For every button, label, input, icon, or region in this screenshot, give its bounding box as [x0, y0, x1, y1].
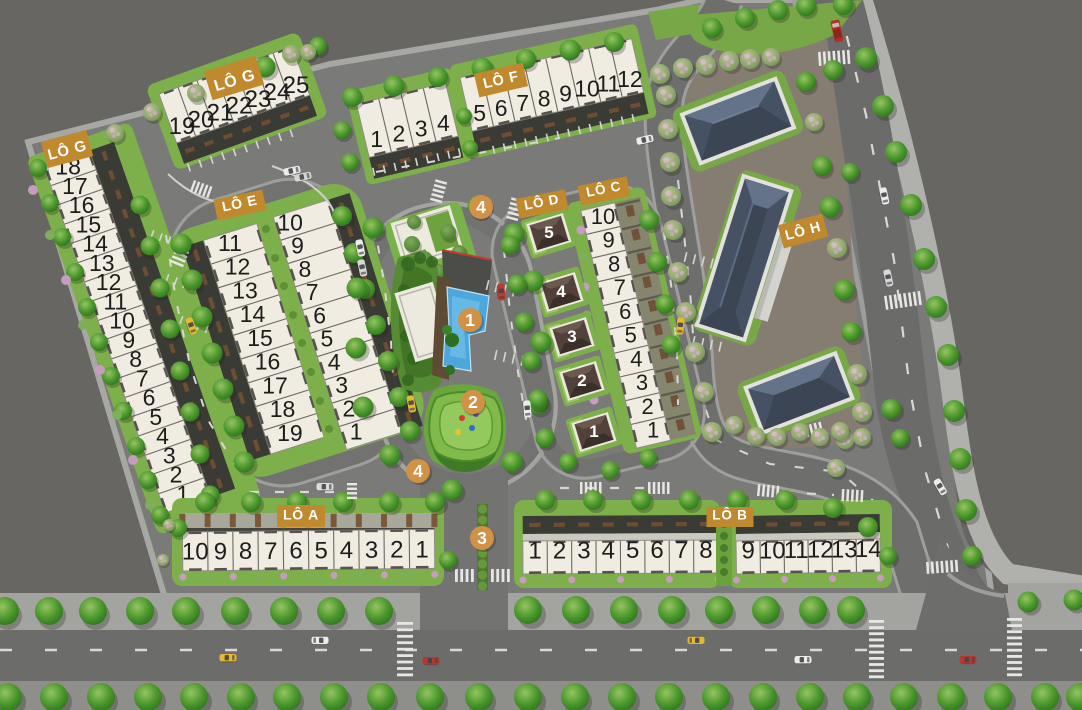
svg-text:8: 8 [299, 256, 312, 282]
svg-text:10: 10 [182, 539, 209, 566]
svg-text:6: 6 [313, 302, 326, 328]
svg-text:9: 9 [559, 80, 572, 106]
svg-text:1: 1 [350, 419, 363, 445]
svg-text:14: 14 [240, 301, 266, 327]
svg-text:4: 4 [476, 197, 486, 217]
svg-text:2: 2 [553, 538, 566, 565]
svg-text:8: 8 [699, 537, 712, 564]
svg-text:3: 3 [567, 327, 576, 346]
svg-text:11: 11 [784, 537, 809, 564]
svg-text:13: 13 [232, 277, 258, 303]
svg-text:LÔ A: LÔ A [283, 506, 319, 523]
svg-text:1: 1 [370, 126, 383, 152]
svg-text:17: 17 [262, 372, 288, 398]
svg-text:12: 12 [225, 254, 251, 280]
svg-text:LÔ B: LÔ B [712, 508, 747, 523]
svg-text:3: 3 [335, 372, 348, 398]
svg-text:1: 1 [589, 422, 598, 441]
svg-text:5: 5 [315, 537, 328, 564]
svg-text:12: 12 [617, 66, 643, 92]
svg-text:3: 3 [636, 370, 648, 395]
svg-text:3: 3 [415, 115, 428, 141]
svg-text:5: 5 [544, 223, 553, 242]
svg-text:2: 2 [393, 121, 406, 147]
svg-text:10: 10 [277, 209, 303, 235]
svg-text:2: 2 [390, 537, 403, 564]
svg-text:7: 7 [306, 279, 319, 305]
svg-text:5: 5 [626, 537, 639, 564]
svg-text:11: 11 [218, 230, 242, 256]
svg-text:5: 5 [625, 323, 637, 348]
svg-text:1: 1 [465, 310, 475, 330]
svg-text:9: 9 [742, 538, 755, 565]
svg-text:4: 4 [602, 537, 615, 564]
svg-text:9: 9 [291, 233, 304, 259]
svg-text:8: 8 [608, 251, 620, 276]
svg-text:19: 19 [277, 420, 303, 446]
svg-text:13: 13 [831, 536, 858, 563]
svg-text:10: 10 [591, 204, 615, 229]
svg-text:4: 4 [630, 346, 642, 371]
svg-text:4: 4 [328, 349, 341, 375]
svg-text:6: 6 [289, 538, 302, 565]
svg-text:5: 5 [321, 326, 334, 352]
svg-text:4: 4 [437, 110, 450, 136]
svg-text:1: 1 [415, 536, 428, 563]
svg-text:7: 7 [614, 275, 626, 300]
svg-text:14: 14 [855, 536, 882, 563]
svg-text:4: 4 [413, 461, 423, 481]
svg-text:3: 3 [577, 538, 590, 565]
svg-text:8: 8 [239, 538, 252, 565]
svg-text:4: 4 [556, 282, 566, 301]
svg-text:9: 9 [602, 228, 614, 253]
svg-text:9: 9 [214, 538, 227, 565]
svg-text:25: 25 [283, 72, 310, 99]
svg-text:5: 5 [473, 100, 486, 126]
svg-text:2: 2 [641, 394, 653, 419]
svg-text:12: 12 [807, 537, 834, 564]
svg-text:7: 7 [675, 537, 688, 564]
svg-text:6: 6 [495, 95, 508, 121]
svg-text:8: 8 [538, 85, 551, 111]
svg-text:7: 7 [264, 538, 277, 565]
svg-text:18: 18 [270, 396, 296, 422]
svg-text:15: 15 [247, 325, 273, 351]
svg-text:10: 10 [759, 537, 786, 564]
svg-text:4: 4 [340, 537, 353, 564]
svg-text:2: 2 [577, 371, 586, 390]
svg-text:1: 1 [528, 538, 541, 565]
svg-text:2: 2 [468, 392, 478, 412]
svg-text:3: 3 [365, 537, 378, 564]
svg-text:6: 6 [619, 299, 631, 324]
svg-text:1: 1 [647, 418, 659, 443]
svg-text:6: 6 [650, 537, 663, 564]
svg-text:16: 16 [255, 349, 281, 375]
svg-text:7: 7 [516, 90, 529, 116]
svg-text:3: 3 [477, 528, 487, 548]
